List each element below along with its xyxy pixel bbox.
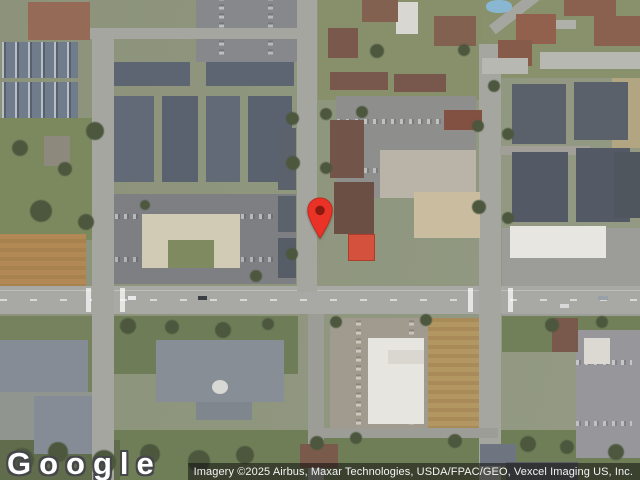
tree — [286, 112, 299, 125]
tree — [140, 200, 150, 210]
tree — [120, 318, 136, 334]
white-building-top — [396, 2, 418, 34]
road-top-horizontal — [80, 28, 302, 39]
tree — [330, 316, 342, 328]
road-bottom-loop — [322, 428, 498, 438]
tree — [320, 162, 332, 174]
crosswalk-right-2 — [508, 288, 513, 312]
road-center-vertical — [297, 0, 317, 292]
tree — [286, 156, 300, 170]
tree — [165, 320, 179, 334]
tree — [78, 214, 94, 230]
tree — [502, 212, 514, 224]
location-pin[interactable] — [307, 197, 333, 239]
house-top-center-1 — [362, 0, 398, 22]
apartment-col-2 — [162, 96, 198, 182]
commercial-white-building — [510, 226, 606, 258]
brown-row-1 — [330, 72, 388, 90]
apartment-col-3 — [206, 96, 240, 182]
tree — [350, 432, 362, 444]
tree — [472, 120, 484, 132]
townhome-row-1 — [2, 42, 78, 78]
house-top-center-2 — [434, 16, 476, 46]
pool — [486, 0, 512, 13]
tree — [12, 140, 28, 156]
attribution-text: Imagery ©2025 Airbus, Maxar Technologies… — [194, 466, 633, 478]
crosswalk-left-2 — [120, 288, 125, 312]
tree — [356, 106, 368, 118]
house-right-4 — [594, 16, 640, 46]
tree — [596, 316, 608, 328]
map-canvas[interactable]: Google Imagery ©2025 Airbus, Maxar Techn… — [0, 0, 640, 480]
white-building-south-right — [584, 338, 610, 364]
white-building-bottom-wing — [388, 350, 424, 364]
complex-bottom-1 — [0, 340, 88, 392]
tree — [310, 436, 324, 450]
tree — [58, 162, 72, 176]
brown-apartment-2 — [334, 182, 374, 234]
tree — [458, 44, 470, 56]
tree — [520, 436, 536, 452]
tennis-court — [348, 234, 375, 261]
tree — [560, 440, 574, 454]
apartment-nw-1 — [114, 62, 190, 86]
apartment-west-road-2 — [278, 196, 296, 232]
tree — [370, 44, 384, 58]
tree — [545, 318, 559, 332]
store-apron — [380, 150, 476, 198]
church-dome — [212, 380, 228, 394]
carport-right-2 — [482, 58, 528, 74]
pin-icon — [307, 197, 333, 239]
church-wing — [196, 402, 252, 420]
crosswalk-right-1 — [468, 288, 473, 312]
tree — [215, 322, 231, 338]
tree — [502, 128, 514, 140]
tree — [608, 444, 624, 460]
apartment-nw-2 — [206, 62, 294, 86]
brown-row-2 — [394, 74, 446, 92]
dirt-lot — [428, 318, 480, 430]
house-right-3 — [564, 0, 616, 16]
apartment-right-2 — [574, 82, 628, 140]
tree — [448, 434, 462, 448]
tree — [236, 446, 254, 464]
apartment-right-1 — [512, 84, 566, 144]
apartment-col-1 — [114, 96, 154, 182]
map-features — [0, 0, 640, 480]
tree — [488, 80, 500, 92]
tree — [420, 314, 432, 326]
brown-apartment-1 — [330, 120, 364, 178]
brown-house-center — [328, 28, 358, 58]
vehicle-2 — [198, 296, 207, 300]
tree — [262, 318, 274, 330]
house-top-left — [28, 2, 90, 40]
tree — [472, 200, 486, 214]
google-logo[interactable]: Google — [7, 448, 162, 479]
tree — [286, 248, 298, 260]
crosswalk-left-1 — [86, 288, 91, 312]
plaza-courtyard — [168, 240, 214, 268]
road-right-vertical — [479, 44, 501, 480]
carport-right-1 — [540, 52, 640, 69]
townhome-row-2 — [2, 82, 78, 118]
dirt-field — [0, 234, 86, 288]
vehicle-1 — [128, 296, 136, 300]
road-left-vertical — [92, 30, 114, 480]
apartment-right-3 — [512, 152, 568, 222]
attribution-bar: Imagery ©2025 Airbus, Maxar Technologies… — [188, 463, 640, 480]
tan-store — [414, 192, 480, 238]
tree — [86, 122, 104, 140]
tree — [320, 108, 332, 120]
tree — [250, 270, 262, 282]
tree — [30, 200, 52, 222]
apartment-right-5 — [614, 152, 640, 218]
vehicle-3 — [560, 304, 569, 308]
vehicle-4 — [598, 296, 608, 300]
